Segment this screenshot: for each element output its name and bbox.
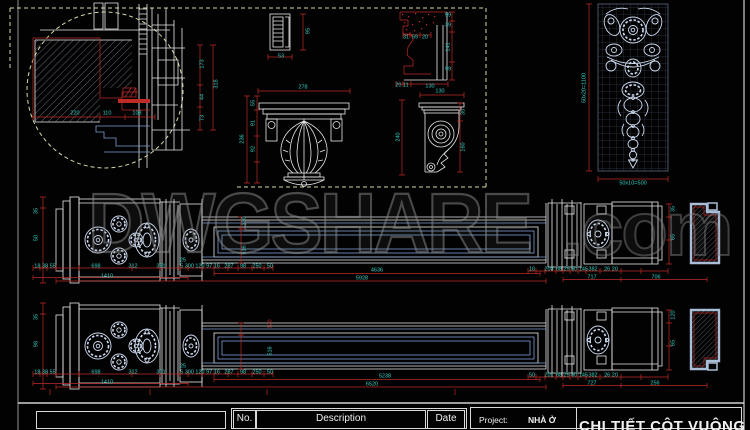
dim-label: 141 (446, 42, 452, 51)
watermark-text: DWGSHARE (88, 181, 530, 265)
dim-label: 20 11 (395, 83, 408, 89)
dim-label: 98 (34, 341, 40, 347)
dim-label: 1410 (101, 380, 113, 386)
watermark-com-text: .com (562, 192, 731, 268)
dim-label: 727 (587, 381, 596, 387)
dim-label: 35 (461, 109, 467, 115)
dim-label: 50 (34, 235, 40, 241)
dim-label: 240 (396, 132, 402, 141)
dim-label: 50x20=1100 (582, 73, 588, 103)
project-title-box: Project: NHÀ Ở CHI TIẾT CỘT VUÔNG (470, 407, 742, 429)
no-column-header: No. (233, 410, 256, 429)
dim-label: 220 (70, 111, 79, 117)
dim-label: 73 (200, 115, 206, 121)
dim-label: 5 300 120 97 16 (180, 370, 220, 376)
dim-label: 698 (91, 370, 100, 376)
dim-label: 16 (529, 267, 535, 273)
dim-label: 39 (445, 23, 451, 29)
dim-label: 130 (425, 84, 434, 90)
dim-label: 120 (671, 310, 677, 319)
dim-label: 50 (529, 373, 535, 379)
corbel-side-view (399, 92, 464, 175)
dim-label: 50x10=500 (619, 181, 646, 187)
flute-block-detail (268, 14, 306, 60)
capital-front-view (244, 88, 350, 187)
dim-label: 53 (278, 54, 284, 60)
dim-label: 706 (651, 275, 660, 281)
dim-label: 250 (252, 370, 261, 376)
dim-label: 50 (267, 370, 273, 376)
dim-label: 59 (412, 35, 418, 41)
section-profile-bottom (691, 310, 719, 370)
dim-label: 516 (268, 346, 274, 355)
dim-label: 92 (251, 146, 257, 152)
dim-label: 99 (445, 67, 451, 73)
drawing-title: CHI TIẾT CỘT VUÔNG (579, 419, 739, 430)
dim-label: 312 (128, 370, 137, 376)
dim-label: 108 (132, 111, 141, 117)
dim-label: 5238 (379, 374, 391, 380)
title-block-divider (576, 408, 577, 430)
dim-label: 35 (34, 314, 40, 320)
dim-label: 68 25 50 145 (556, 373, 588, 379)
dim-label: 256 (650, 381, 659, 387)
dim-label: 301 (156, 370, 165, 376)
dim-label: 203 (544, 267, 553, 273)
dim-label: 120 (268, 319, 274, 328)
dim-label: 287 (224, 370, 233, 376)
dim-label: 99 (445, 13, 451, 19)
dim-label: 201 (544, 373, 553, 379)
dim-label: 173 (200, 59, 206, 68)
dim-label: 717 (587, 275, 596, 281)
dim-label: 65 (671, 340, 677, 346)
date-column-header: Date (427, 410, 465, 429)
dim-label: 278 (298, 85, 307, 91)
dim-label: 382 (588, 373, 597, 379)
dim-label: 130 (435, 89, 444, 95)
cad-drawing-canvas: 2201101081733184473955399391419931592020… (0, 0, 750, 430)
date-header-label: Date (428, 414, 464, 424)
description-header-label: Description (257, 414, 425, 424)
dim-label: 31 (403, 35, 409, 41)
dim-label: 6520 (366, 382, 378, 388)
dim-label: 18 38 55 (34, 264, 55, 270)
dim-label: 95 (306, 28, 312, 34)
dim-label: 98 (240, 370, 246, 376)
ornament-panel (586, 4, 668, 182)
dim-label: 44 (200, 94, 206, 100)
dim-label: 110 (103, 111, 112, 117)
dim-label: 20 (422, 35, 428, 41)
dim-label: 35 (34, 208, 40, 214)
dim-label: 91 (251, 120, 257, 126)
dim-label: 55 (251, 100, 257, 106)
dim-label: 236 (240, 134, 246, 143)
detail-circle-callout (27, 3, 216, 168)
dim-label: 26 20 (604, 373, 618, 379)
revision-box (36, 411, 226, 429)
dim-label: 160 (461, 142, 467, 151)
no-header-label: No. (234, 414, 255, 424)
project-value: NHÀ Ở (528, 416, 556, 425)
dim-label: 318 (214, 79, 220, 88)
dim-label: 18 38 55 (34, 370, 55, 376)
dim-label: 1410 (101, 274, 113, 280)
description-column-header: Description (256, 410, 426, 429)
dim-label: 5928 (356, 276, 368, 282)
project-label: Project: (479, 416, 508, 425)
